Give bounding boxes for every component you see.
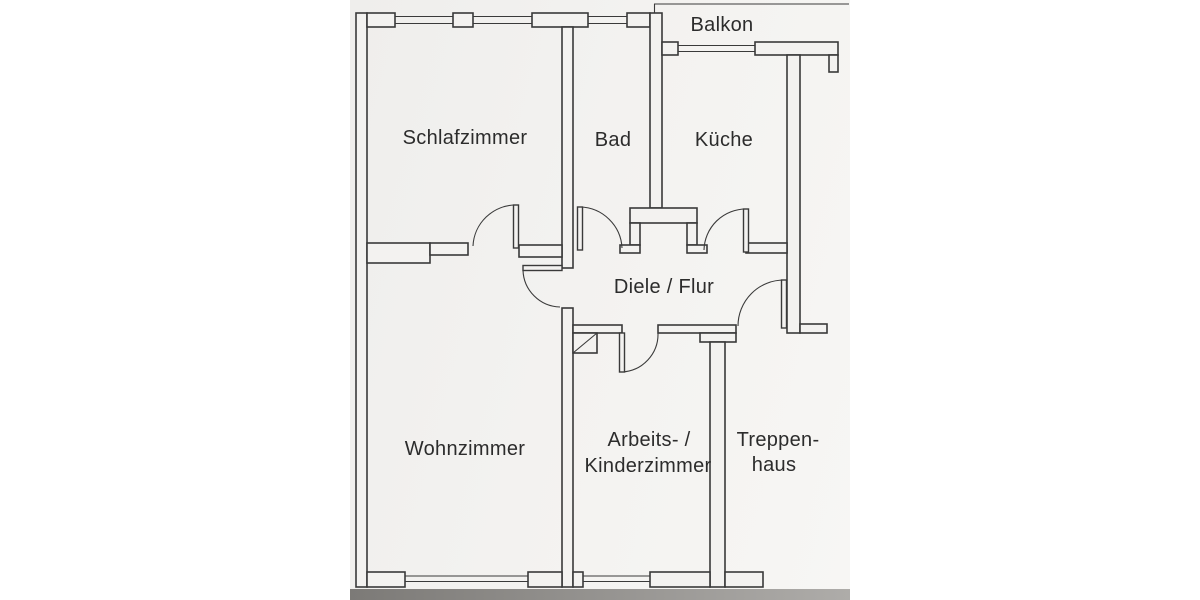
door-arc-arbeitszimmer [622, 333, 658, 372]
wall-schlafzimmer-bad-divider [562, 27, 573, 268]
wall-bad-kueche-divider [650, 13, 662, 208]
door-arc-entrance [738, 280, 784, 326]
floor-plan-scan: Balkon Schlafzimmer Bad Küche Diele / Fl… [350, 0, 850, 600]
wall-wohnzimmer-east [562, 308, 573, 587]
room-label-arbeitszimmer-line1: Arbeits- / [607, 429, 690, 451]
door-leaf-schlafzimmer [514, 205, 519, 248]
wall-schlafzimmer-south-thick [367, 243, 430, 263]
balcony-railing [654, 4, 849, 13]
door-arc-bad [580, 207, 622, 248]
wall-arbeitszimmer-cap [700, 333, 736, 342]
wall-hall-south-seg1 [573, 325, 622, 333]
wall-kueche-south [746, 243, 787, 253]
wall-top-seg3 [627, 13, 650, 27]
wall-right-foot [800, 324, 827, 333]
wall-balcony-seg2 [755, 42, 838, 55]
wall-balcony-stub [829, 55, 838, 72]
room-label-diele-flur: Diele / Flur [614, 276, 714, 298]
room-label-kueche: Küche [695, 129, 753, 151]
door-arc-kueche [704, 209, 746, 250]
room-label-arbeitszimmer-line2: Kinderzimmer [585, 455, 712, 477]
room-label-schlafzimmer: Schlafzimmer [403, 127, 528, 149]
wall-bottom-seg3 [573, 572, 583, 587]
wall-bottom-seg4 [650, 572, 710, 587]
wall-prong-left [630, 223, 640, 245]
room-label-treppenhaus-line1: Treppen- [737, 429, 820, 451]
wall-bottom-seg5 [725, 572, 763, 587]
wall-tbar [630, 208, 697, 223]
wall-right-outer [787, 55, 800, 333]
wall-schlafzimmer-south-right [519, 245, 562, 257]
scan-bottom-edge [350, 589, 850, 600]
wall-schlafzimmer-south-thin [430, 243, 468, 255]
window-bad [588, 17, 627, 24]
wall-prong-right [687, 223, 697, 245]
wall-left-outer [356, 13, 367, 587]
screenshot-canvas: Balkon Schlafzimmer Bad Küche Diele / Fl… [0, 0, 1200, 600]
door-leaf-bad [578, 207, 583, 250]
door-arc-wohnzimmer [523, 270, 560, 307]
door-arc-schlafzimmer [473, 205, 516, 246]
door-leaf-entrance [782, 280, 787, 328]
window-wohnzimmer [405, 576, 528, 582]
wall-bottom-seg1 [367, 572, 405, 587]
room-label-wohnzimmer: Wohnzimmer [405, 438, 525, 460]
wall-bottom-seg2 [528, 572, 562, 587]
window-kueche-balcony [678, 46, 755, 52]
window-schlafzimmer-2 [473, 17, 532, 24]
wall-arbeitszimmer-east [710, 342, 725, 587]
room-label-treppenhaus-line2: haus [752, 454, 797, 476]
door-leaf-kueche [744, 209, 749, 252]
walls [356, 13, 838, 587]
wall-top-seg1 [367, 13, 395, 27]
floor-plan: Balkon Schlafzimmer Bad Küche Diele / Fl… [350, 0, 850, 600]
wall-prong-left-foot [620, 245, 640, 253]
door-leaf-wohnzimmer [523, 266, 562, 271]
wall-top-seg2 [532, 13, 588, 27]
room-label-bad: Bad [595, 129, 632, 151]
wall-hall-south-seg2 [658, 325, 736, 333]
door-leaf-arbeitszimmer [620, 333, 625, 372]
window-arbeitszimmer [583, 576, 650, 582]
window-schlafzimmer-1 [395, 17, 453, 24]
wall-balcony-seg1 [662, 42, 678, 55]
wall-top-pier [453, 13, 473, 27]
room-label-balkon: Balkon [691, 14, 754, 36]
